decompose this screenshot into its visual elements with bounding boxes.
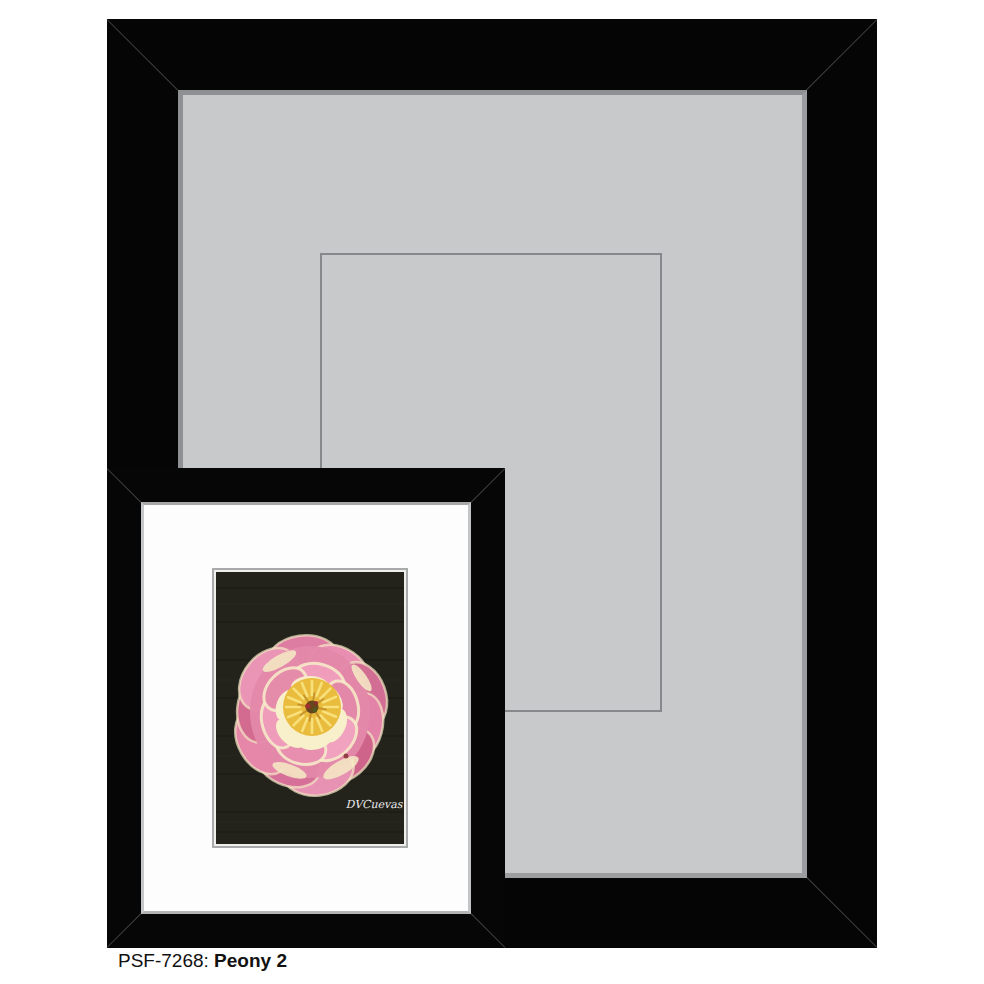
caption-title: Peony 2 — [214, 950, 287, 971]
artist-signature: DVCuevas — [346, 798, 404, 811]
peony-painting: DVCuevas — [214, 570, 406, 846]
product-image: DVCuevas PSF-7268: Peony 2 — [0, 0, 984, 984]
miter-line — [806, 19, 877, 90]
caption-sku: PSF-7268: — [118, 950, 209, 971]
petal-accent-dot — [344, 754, 349, 759]
flower-center — [283, 678, 341, 736]
white-mat: DVCuevas — [141, 502, 471, 914]
miter-line — [806, 876, 877, 947]
miter-line — [471, 913, 506, 948]
miter-line — [107, 19, 178, 90]
miter-line — [107, 468, 142, 503]
sample-frame: DVCuevas — [107, 468, 505, 948]
miter-line — [107, 913, 142, 948]
miter-line — [471, 468, 506, 503]
caption: PSF-7268: Peony 2 — [118, 950, 287, 972]
peony-artwork: DVCuevas — [212, 568, 408, 848]
